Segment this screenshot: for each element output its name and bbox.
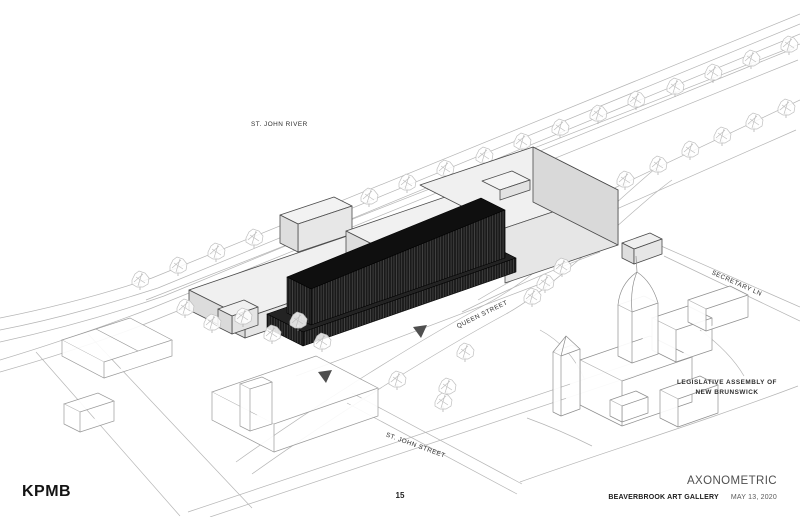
label-st-john-river: ST. JOHN RIVER xyxy=(251,121,308,128)
project-name: BEAVERBROOK ART GALLERY xyxy=(608,494,719,501)
slide-date: MAY 13, 2020 xyxy=(731,494,777,501)
city-blocks-wireframe xyxy=(62,318,378,452)
footer-meta: BEAVERBROOK ART GALLERY MAY 13, 2020 xyxy=(608,494,777,501)
gallery-east-dock xyxy=(622,233,662,264)
label-legislative-assembly-line2: NEW BRUNSWICK xyxy=(696,389,759,396)
label-queen-street: QUEEN STREET xyxy=(456,299,509,330)
label-legislative-assembly-line1: LEGISLATIVE ASSEMBLY OF xyxy=(677,379,777,386)
legislative-assembly-wireframe xyxy=(553,256,748,427)
axonometric-drawing: ST. JOHN RIVER QUEEN STREET SECRETARY LN… xyxy=(0,0,800,517)
presentation-slide: ST. JOHN RIVER QUEEN STREET SECRETARY LN… xyxy=(0,0,800,517)
drawing-title: AXONOMETRIC xyxy=(687,475,777,487)
